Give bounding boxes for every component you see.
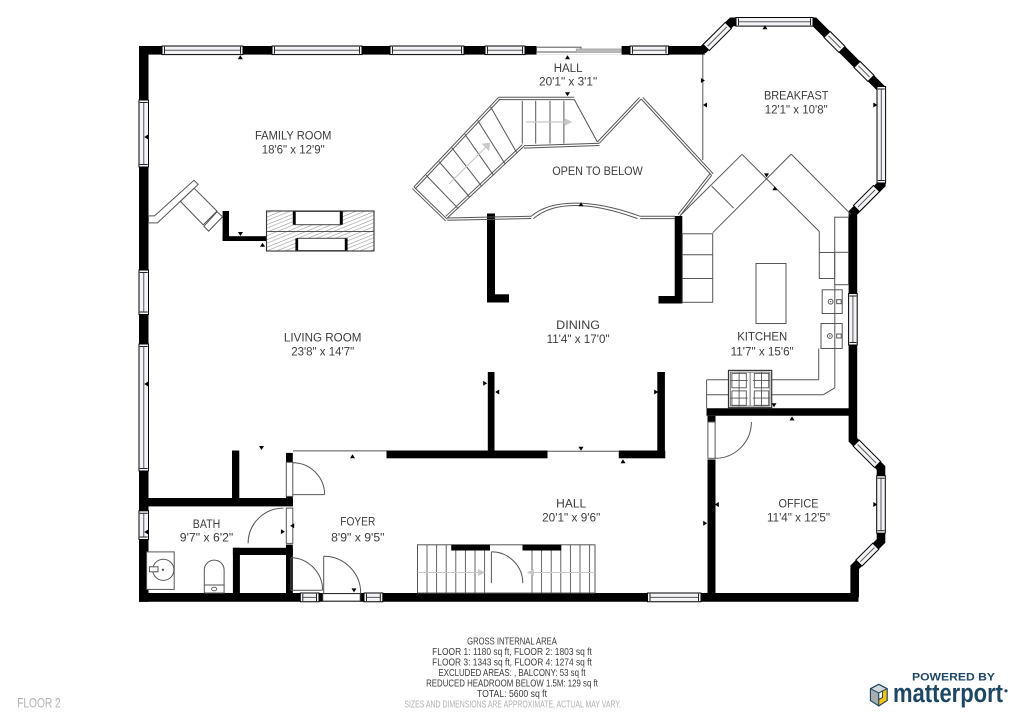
svg-text:23'8" x 14'7": 23'8" x 14'7" (291, 346, 354, 358)
svg-text:FAMILY ROOM: FAMILY ROOM (255, 130, 332, 142)
svg-text:TOTAL: 5600 sq ft: TOTAL: 5600 sq ft (477, 689, 547, 700)
svg-text:KITCHEN: KITCHEN (737, 331, 787, 343)
svg-text:SIZES AND DIMENSIONS ARE APPRO: SIZES AND DIMENSIONS ARE APPROXIMATE, AC… (404, 699, 621, 710)
svg-text:FLOOR 1: 1180 sq ft, FLOOR 2:: FLOOR 1: 1180 sq ft, FLOOR 2: 1803 sq ft (432, 647, 592, 658)
svg-text:12'1" x 10'8": 12'1" x 10'8" (765, 105, 828, 117)
svg-text:11'4" x 12'5": 11'4" x 12'5" (767, 513, 830, 525)
svg-text:BREAKFAST: BREAKFAST (764, 91, 829, 103)
svg-text:LIVING ROOM: LIVING ROOM (284, 332, 362, 344)
svg-text:OPEN TO BELOW: OPEN TO BELOW (552, 166, 643, 178)
svg-text:GROSS INTERNAL AREA: GROSS INTERNAL AREA (467, 636, 557, 647)
svg-text:OFFICE: OFFICE (779, 499, 819, 511)
svg-text:8'9" x 9'5": 8'9" x 9'5" (331, 532, 384, 544)
svg-text:FLOOR 2: FLOOR 2 (17, 695, 61, 711)
svg-text:18'6" x 12'9": 18'6" x 12'9" (262, 145, 325, 157)
svg-text:EXCLUDED AREAS: , BALCONY: 53: EXCLUDED AREAS: , BALCONY: 53 sq ft (439, 668, 586, 679)
svg-text:DINING: DINING (556, 320, 600, 332)
svg-text:HALL: HALL (556, 499, 587, 511)
svg-text:matterport: matterport (893, 680, 1003, 708)
svg-text:9'7" x 6'2": 9'7" x 6'2" (180, 532, 233, 544)
svg-text:BATH: BATH (193, 519, 221, 531)
svg-text:FOYER: FOYER (340, 516, 375, 528)
svg-text:20'1" x 9'6": 20'1" x 9'6" (542, 513, 600, 525)
svg-text:20'1" x 3'1": 20'1" x 3'1" (539, 77, 597, 89)
svg-text:HALL: HALL (554, 63, 583, 75)
svg-text:11'7" x 15'6": 11'7" x 15'6" (731, 346, 794, 358)
svg-text:11'4" x 17'0": 11'4" x 17'0" (547, 334, 610, 346)
